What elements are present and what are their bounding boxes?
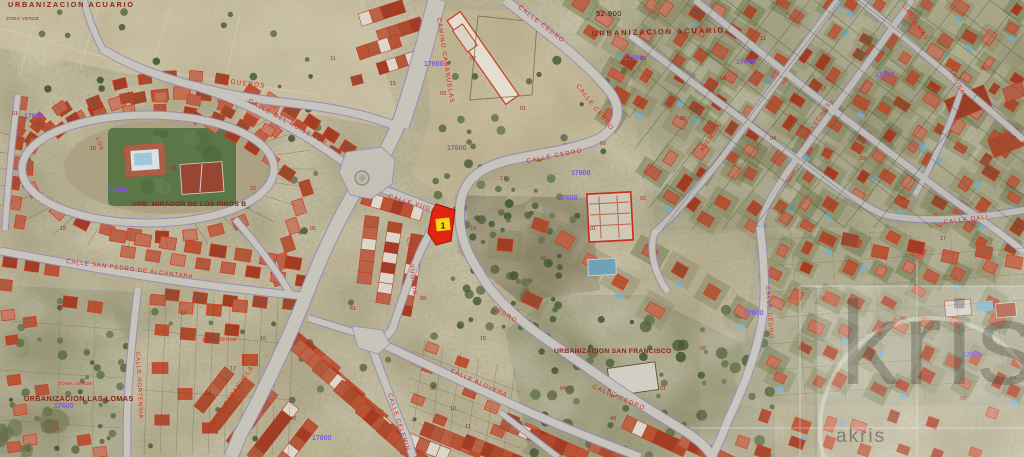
- svg-text:04: 04: [560, 386, 566, 392]
- svg-text:17600: 17600: [736, 59, 756, 66]
- svg-text:17: 17: [940, 236, 946, 242]
- svg-text:1: 1: [441, 221, 446, 231]
- svg-text:02: 02: [640, 196, 646, 202]
- svg-text:11: 11: [465, 424, 471, 430]
- svg-text:40: 40: [610, 416, 616, 422]
- svg-text:01: 01: [590, 226, 596, 232]
- svg-text:URBANIZACION SAN FRANCISCO: URBANIZACION SAN FRANCISCO: [554, 348, 672, 355]
- svg-text:40: 40: [290, 416, 296, 422]
- svg-text:17: 17: [500, 176, 506, 182]
- svg-text:03: 03: [860, 156, 866, 162]
- svg-text:06: 06: [680, 116, 686, 122]
- svg-text:06: 06: [980, 66, 986, 72]
- svg-text:ZONA VERDE: ZONA VERDE: [202, 337, 237, 343]
- svg-text:14: 14: [205, 391, 211, 397]
- svg-text:17600: 17600: [571, 170, 591, 177]
- svg-text:15: 15: [480, 336, 486, 342]
- svg-text:17600: 17600: [108, 187, 128, 194]
- svg-text:13: 13: [820, 86, 826, 92]
- svg-text:02: 02: [470, 56, 476, 62]
- svg-text:05: 05: [310, 226, 316, 232]
- svg-text:URBANIZACION LAS LOMAS: URBANIZACION LAS LOMAS: [24, 394, 134, 403]
- svg-text:03: 03: [440, 91, 446, 97]
- svg-text:04: 04: [770, 136, 776, 142]
- svg-text:17600: 17600: [24, 113, 44, 120]
- svg-text:17600: 17600: [424, 61, 444, 68]
- svg-text:17600: 17600: [54, 403, 74, 410]
- svg-text:18: 18: [60, 226, 66, 232]
- svg-text:17: 17: [1010, 136, 1016, 142]
- svg-text:17600: 17600: [558, 195, 578, 202]
- svg-text:01: 01: [660, 386, 666, 392]
- svg-text:17600: 17600: [875, 72, 895, 79]
- svg-text:15: 15: [390, 81, 396, 87]
- svg-text:61: 61: [350, 306, 356, 312]
- svg-text:29: 29: [640, 56, 646, 62]
- svg-text:11: 11: [330, 56, 336, 62]
- svg-text:15: 15: [470, 226, 476, 232]
- svg-text:60: 60: [600, 141, 606, 147]
- svg-text:ZONA VERDE: ZONA VERDE: [58, 381, 93, 387]
- svg-text:URBANIZACION ACUARIO: URBANIZACION ACUARIO: [8, 0, 135, 9]
- svg-text:22: 22: [250, 186, 256, 192]
- svg-text:52.900: 52.900: [596, 9, 622, 18]
- svg-text:ZONA VERDE: ZONA VERDE: [6, 16, 40, 21]
- svg-text:URB. MIRADOR DE LOS PINOS B: URB. MIRADOR DE LOS PINOS B: [132, 201, 246, 208]
- svg-text:09: 09: [170, 166, 176, 172]
- svg-text:16: 16: [260, 336, 266, 342]
- svg-text:17: 17: [230, 366, 236, 372]
- svg-text:08: 08: [720, 76, 726, 82]
- svg-text:kris: kris: [840, 278, 1024, 410]
- svg-text:17600: 17600: [447, 145, 467, 152]
- svg-text:09: 09: [900, 196, 906, 202]
- svg-text:11: 11: [760, 36, 766, 42]
- svg-text:10: 10: [450, 406, 456, 412]
- svg-text:01: 01: [520, 106, 526, 112]
- svg-text:09: 09: [420, 296, 426, 302]
- svg-text:08: 08: [430, 386, 436, 392]
- svg-text:10: 10: [90, 146, 96, 152]
- svg-text:akris: akris: [836, 426, 886, 447]
- svg-text:01: 01: [12, 111, 18, 117]
- svg-text:16: 16: [540, 256, 546, 262]
- svg-text:17600: 17600: [312, 435, 332, 442]
- svg-text:18: 18: [180, 311, 186, 317]
